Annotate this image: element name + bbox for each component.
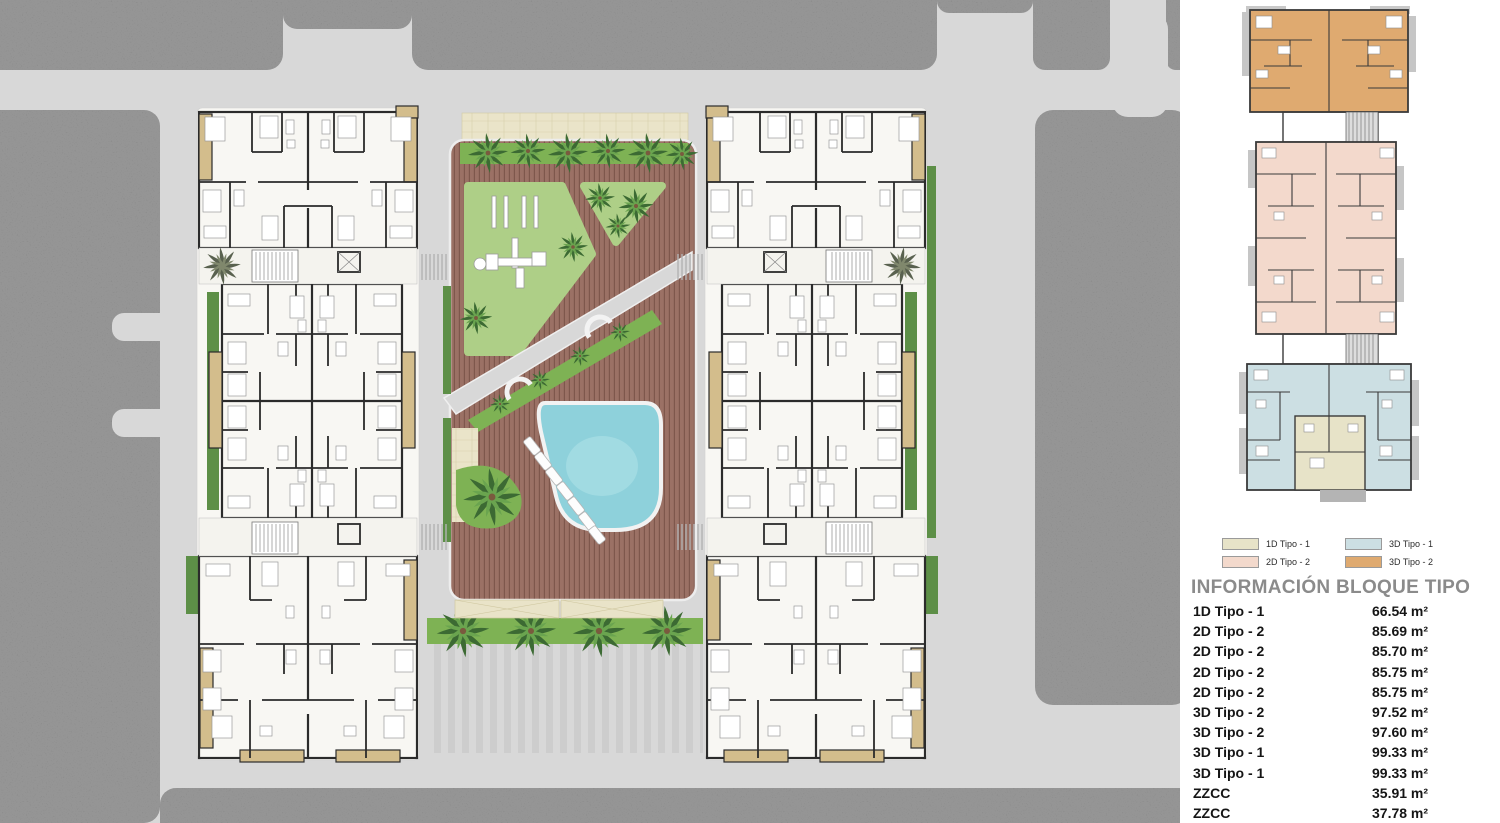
unit-type: 3D Tipo - 1 (1193, 744, 1372, 760)
unit-type: 2D Tipo - 2 (1193, 643, 1372, 659)
left-building (186, 106, 446, 762)
table-row: 2D Tipo - 2 85.70 m² (1193, 641, 1490, 661)
legend-swatch (1222, 556, 1259, 568)
unit-type: 3D Tipo - 2 (1193, 704, 1372, 720)
table-row: ZZCC 37.78 m² (1193, 803, 1490, 823)
legend-label: 1D Tipo - 1 (1266, 539, 1310, 549)
info-table: 1D Tipo - 1 66.54 m² 2D Tipo - 2 85.69 m… (1193, 601, 1490, 823)
courtyard-deck (443, 133, 698, 618)
right-building (678, 106, 938, 762)
info-panel: 1D Tipo - 1 2D Tipo - 2 3D Tipo - 1 3D T… (1180, 0, 1500, 823)
unit-type: ZZCC (1193, 805, 1372, 821)
unit-area: 97.60 m² (1372, 724, 1428, 740)
unit-area: 99.33 m² (1372, 765, 1428, 781)
striped-pavement (427, 642, 703, 753)
unit-area: 85.70 m² (1372, 643, 1428, 659)
legend-label: 3D Tipo - 2 (1389, 557, 1433, 567)
unit-area: 35.91 m² (1372, 785, 1428, 801)
deck-south-pavers (455, 600, 663, 618)
unit-area: 85.69 m² (1372, 623, 1428, 639)
unit-type: 2D Tipo - 2 (1193, 623, 1372, 639)
site-plan-page: 1D Tipo - 1 2D Tipo - 2 3D Tipo - 1 3D T… (0, 0, 1500, 823)
table-row: 3D Tipo - 1 99.33 m² (1193, 763, 1490, 783)
table-row: 2D Tipo - 2 85.69 m² (1193, 621, 1490, 641)
legend-label: 3D Tipo - 1 (1389, 539, 1433, 549)
legend-swatch (1345, 538, 1382, 550)
unit-area: 66.54 m² (1372, 603, 1428, 619)
table-row: 3D Tipo - 1 99.33 m² (1193, 742, 1490, 762)
site-plan-drawing (0, 0, 1180, 823)
unit-area: 97.52 m² (1372, 704, 1428, 720)
unit-area: 85.75 m² (1372, 664, 1428, 680)
legend-item: 3D Tipo - 1 (1345, 537, 1433, 551)
unit-type: 2D Tipo - 2 (1193, 684, 1372, 700)
east-hedge (927, 166, 936, 538)
wing-2d-tipo2 (1248, 142, 1404, 334)
entry-stub (1320, 490, 1366, 502)
unit-type: 3D Tipo - 2 (1193, 724, 1372, 740)
wing-3d-tipo2 (1242, 10, 1416, 112)
table-row: 2D Tipo - 2 85.75 m² (1193, 662, 1490, 682)
legend-label: 2D Tipo - 2 (1266, 557, 1310, 567)
legend-item: 1D Tipo - 1 (1222, 537, 1310, 551)
stair-core (1283, 334, 1378, 364)
unit-type: 2D Tipo - 2 (1193, 664, 1372, 680)
table-row: 1D Tipo - 1 66.54 m² (1193, 601, 1490, 621)
info-title: INFORMACIÓN BLOQUE TIPO (1191, 577, 1493, 599)
table-row: 2D Tipo - 2 85.75 m² (1193, 682, 1490, 702)
unit-area: 37.78 m² (1372, 805, 1428, 821)
unit-type: ZZCC (1193, 785, 1372, 801)
table-row: 3D Tipo - 2 97.52 m² (1193, 702, 1490, 722)
unit-area: 85.75 m² (1372, 684, 1428, 700)
north-paver-area (462, 113, 688, 140)
table-row: 3D Tipo - 2 97.60 m² (1193, 722, 1490, 742)
table-row: ZZCC 35.91 m² (1193, 783, 1490, 803)
stair-core (1283, 112, 1378, 142)
legend-swatch (1222, 538, 1259, 550)
legend-swatch (1345, 556, 1382, 568)
block-type-plan (1180, 0, 1500, 535)
legend-item: 3D Tipo - 2 (1345, 555, 1433, 569)
unit-area: 99.33 m² (1372, 744, 1428, 760)
wing-3d-tipo1 (1239, 364, 1419, 490)
legend-item: 2D Tipo - 2 (1222, 555, 1310, 569)
unit-type: 3D Tipo - 1 (1193, 765, 1372, 781)
unit-type: 1D Tipo - 1 (1193, 603, 1372, 619)
